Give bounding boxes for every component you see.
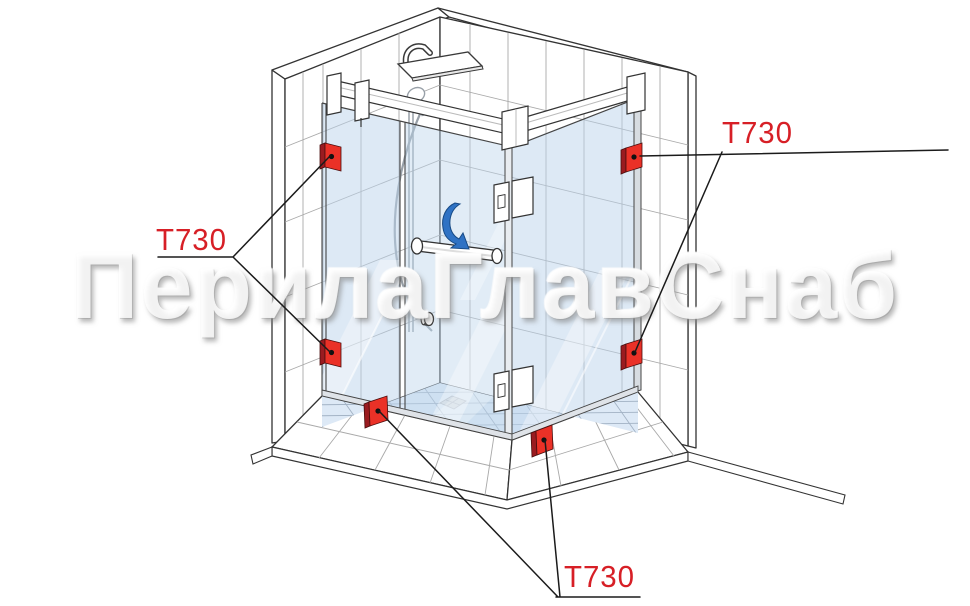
left-wall-bottom-clamp bbox=[320, 339, 341, 367]
bar-wall-bracket-left bbox=[327, 73, 341, 115]
door-knob bbox=[421, 313, 433, 326]
right-wall-end-face bbox=[688, 72, 696, 448]
part-label-top-right: Т730 bbox=[722, 117, 793, 148]
floor-edge-right bbox=[688, 452, 845, 504]
shower-enclosure-diagram: ПерилаГлавСнаб Т730 Т730 Т730 bbox=[0, 0, 970, 606]
part-label-bottom: Т730 bbox=[564, 561, 635, 592]
enclosure-drawing bbox=[0, 0, 970, 606]
floor-edge-left bbox=[251, 447, 272, 464]
bar-glass-clamp-left bbox=[355, 80, 369, 121]
bar-wall-bracket-right bbox=[627, 73, 645, 114]
left-wall-end-face bbox=[272, 70, 285, 443]
left-wall-top-clamp bbox=[320, 143, 341, 171]
glass-panels bbox=[300, 97, 641, 450]
part-label-left: Т730 bbox=[156, 224, 227, 255]
bar-corner-connector bbox=[502, 106, 528, 150]
